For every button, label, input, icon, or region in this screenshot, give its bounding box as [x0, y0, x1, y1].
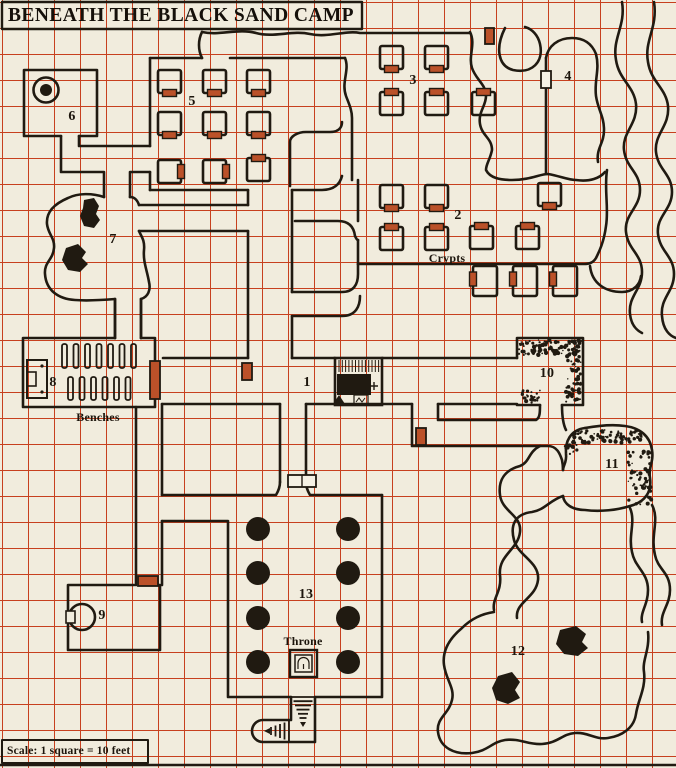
door-icon — [477, 89, 491, 96]
altar-icon — [337, 374, 371, 395]
door-icon — [385, 89, 399, 96]
room-label-5: 5 — [188, 95, 195, 109]
room-label-1: 1 — [303, 376, 310, 390]
scale-note: Scale: 1 square = 10 feet — [7, 745, 130, 757]
door-icon — [208, 132, 222, 139]
door-icon — [163, 132, 177, 139]
room-label-6: 6 — [68, 110, 75, 124]
door-icon — [223, 165, 230, 179]
door-icon — [470, 272, 477, 286]
door-icon — [416, 428, 426, 445]
door-icon — [550, 272, 557, 286]
room-label-11: 11 — [605, 458, 619, 472]
door-icon — [521, 223, 535, 230]
door-icon — [163, 90, 177, 97]
door-icon — [242, 363, 252, 380]
benches-label: Benches — [76, 411, 119, 423]
room-label-9: 9 — [98, 609, 105, 623]
door-icon — [430, 205, 444, 212]
door-icon — [178, 165, 185, 179]
door-icon — [150, 361, 160, 399]
throne-label: Throne — [284, 635, 323, 647]
pillar-icon — [336, 561, 360, 585]
door-icon — [430, 66, 444, 73]
door-icon — [385, 205, 399, 212]
door-icon — [475, 223, 489, 230]
map-title: BENEATH THE BLACK SAND CAMP — [8, 5, 358, 27]
room-label-13: 13 — [299, 588, 314, 602]
room-label-7: 7 — [109, 233, 116, 247]
pillar-icon — [336, 650, 360, 674]
door-icon — [385, 66, 399, 73]
door-icon — [385, 224, 399, 231]
door-icon — [252, 155, 266, 162]
door-icon — [510, 272, 517, 286]
room-label-10: 10 — [540, 367, 555, 381]
pillar-icon — [246, 606, 270, 630]
door-icon — [252, 132, 266, 139]
door-icon — [208, 90, 222, 97]
double-door-icon — [541, 71, 551, 88]
dungeon-map-page: BENEATH THE BLACK SAND CAMP Scale: 1 squ… — [0, 0, 676, 768]
door-icon — [430, 224, 444, 231]
door-icon — [543, 203, 557, 210]
pillar-icon — [246, 517, 270, 541]
crypts-label: Crypts — [429, 252, 466, 264]
pillar-icon — [336, 517, 360, 541]
pillar-icon — [336, 606, 360, 630]
pillar-icon — [246, 561, 270, 585]
door-icon — [252, 90, 266, 97]
dungeon-map — [0, 0, 676, 768]
room-label-8: 8 — [49, 376, 56, 390]
door-icon — [485, 28, 494, 44]
room-label-4: 4 — [564, 70, 571, 84]
pillar-icon — [246, 650, 270, 674]
door-icon — [138, 576, 158, 586]
room-label-12: 12 — [511, 645, 526, 659]
door-icon — [430, 89, 444, 96]
room-label-3: 3 — [409, 74, 416, 88]
room-label-2: 2 — [454, 209, 461, 223]
